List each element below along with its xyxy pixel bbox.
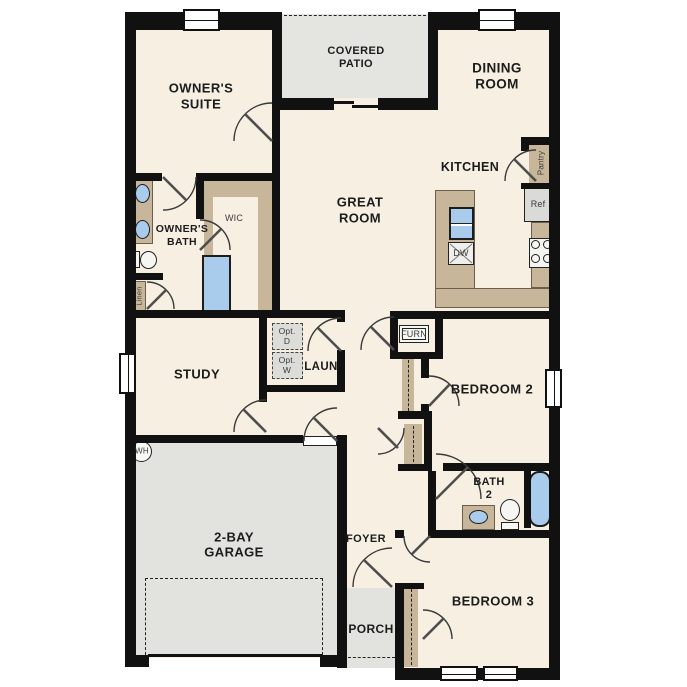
wall-segment — [395, 583, 404, 680]
bifold-lower-dashed — [413, 426, 414, 462]
window — [440, 666, 478, 681]
wall-segment — [125, 310, 345, 318]
room-label-owners-bath: BATH — [167, 236, 197, 248]
wall-segment — [438, 12, 482, 30]
wall-segment — [378, 98, 438, 110]
garage-door-threshold — [303, 436, 337, 446]
room-label-garage: 2-BAY — [214, 530, 254, 545]
room-label-bath-2: BATH — [473, 476, 504, 488]
wall-segment — [337, 435, 347, 668]
fixture-label-dishwasher: DW — [453, 248, 468, 258]
room-label-porch: PORCH — [348, 622, 393, 636]
floor-plan: OWNER'S SUITE COVERED PATIO DINING ROOM … — [0, 0, 687, 687]
wall-segment — [428, 471, 436, 538]
bedroom3-bifold-dashed — [411, 589, 412, 665]
wall-segment — [131, 273, 163, 280]
wall-segment — [390, 311, 560, 319]
patio-open-edge-dashed — [284, 15, 426, 16]
wall-segment — [125, 655, 149, 667]
room-label-kitchen: KITCHEN — [441, 160, 499, 174]
wall-segment — [549, 404, 560, 680]
wall-segment — [428, 530, 560, 538]
kitchen-counter-bottom — [435, 288, 553, 308]
wall-segment — [259, 318, 267, 388]
room-label-owners-suite: SUITE — [181, 97, 221, 112]
wic-shelf-right — [258, 197, 272, 311]
sliding-glass-door — [352, 105, 382, 108]
garage-door-dashed-outline — [145, 578, 323, 655]
wall-segment — [395, 583, 424, 589]
room-label-bath-2: 2 — [486, 489, 493, 501]
wall-segment — [196, 173, 272, 181]
wall-segment — [259, 385, 267, 402]
wall-segment — [529, 137, 560, 145]
toilet-bowl — [500, 499, 520, 521]
window — [483, 666, 518, 681]
wall-segment — [428, 12, 438, 110]
room-label-great-room: ROOM — [339, 211, 381, 226]
wall-segment — [337, 310, 345, 322]
wall-segment — [259, 385, 345, 392]
wall-segment — [524, 471, 531, 528]
wall-segment — [272, 12, 282, 110]
bath2-sink — [469, 510, 488, 524]
window — [478, 9, 516, 31]
room-label-bedroom-2: BEDROOM 2 — [451, 382, 533, 397]
wall-segment — [395, 530, 404, 538]
room-label-covered-patio: COVERED — [327, 45, 384, 57]
wall-segment — [196, 181, 204, 219]
fixture-label-water-heater: WH — [135, 447, 149, 456]
fixture-label-pantry: Pantry — [537, 151, 546, 175]
fixture-label-opt-washer: W — [283, 365, 291, 375]
window — [119, 353, 136, 394]
wall-segment — [435, 311, 443, 358]
porch-open-edge-dashed — [348, 657, 395, 658]
room-label-dining-room: ROOM — [475, 77, 519, 92]
fixture-label-opt-dryer: D — [284, 336, 290, 346]
stove-burner — [531, 254, 540, 263]
wall-segment — [125, 435, 303, 443]
fixture-label-opt-washer: Opt. — [279, 355, 296, 365]
wall-segment — [272, 110, 280, 318]
room-label-wic: WIC — [225, 213, 243, 223]
bath-sink — [135, 220, 150, 239]
room-label-laundry: LAUN — [304, 361, 338, 373]
bath-sink — [135, 184, 150, 203]
fixture-label-refrigerator: Ref — [531, 199, 546, 209]
kitchen-sink — [449, 207, 474, 240]
wall-segment — [398, 464, 432, 471]
room-label-garage: GARAGE — [204, 545, 263, 560]
room-label-owners-bath: OWNER'S — [156, 223, 209, 235]
room-label-dining-room: DINING — [472, 61, 522, 76]
bifold-upper-dashed — [408, 360, 409, 411]
room-label-covered-patio: PATIO — [339, 58, 373, 70]
room-label-foyer: FOYER — [346, 533, 386, 545]
window — [183, 9, 220, 31]
room-label-owners-suite: OWNER'S — [169, 81, 233, 96]
wall-segment — [272, 98, 334, 110]
fixture-label-furnace: FURN — [401, 329, 427, 339]
garage-door-line — [148, 654, 322, 657]
wall-segment — [514, 668, 560, 680]
stove-burner — [531, 240, 540, 249]
kitchen-counter-left — [435, 190, 475, 290]
sliding-glass-door — [330, 101, 354, 104]
window — [545, 369, 562, 408]
bathtub — [529, 471, 551, 527]
wall-segment — [390, 352, 443, 359]
wall-segment — [421, 352, 429, 378]
room-label-bedroom-3: BEDROOM 3 — [452, 594, 534, 609]
fixture-label-opt-dryer: Opt. — [279, 326, 296, 336]
room-label-study: STUDY — [174, 367, 220, 382]
room-label-great-room: GREAT — [337, 195, 384, 210]
wall-segment — [390, 311, 398, 357]
wall-segment — [125, 392, 136, 667]
wall-segment — [443, 463, 560, 471]
wall-segment — [131, 173, 162, 181]
kitchen-sink-divider — [451, 223, 472, 226]
wall-segment — [521, 137, 529, 151]
wall-segment — [521, 183, 560, 189]
wall-segment — [398, 668, 444, 680]
shower — [202, 255, 231, 313]
fixture-label-linen: Linen — [135, 286, 144, 305]
toilet-tank — [501, 522, 519, 530]
wic-shelf-top — [204, 181, 272, 197]
toilet-bowl — [140, 251, 157, 269]
